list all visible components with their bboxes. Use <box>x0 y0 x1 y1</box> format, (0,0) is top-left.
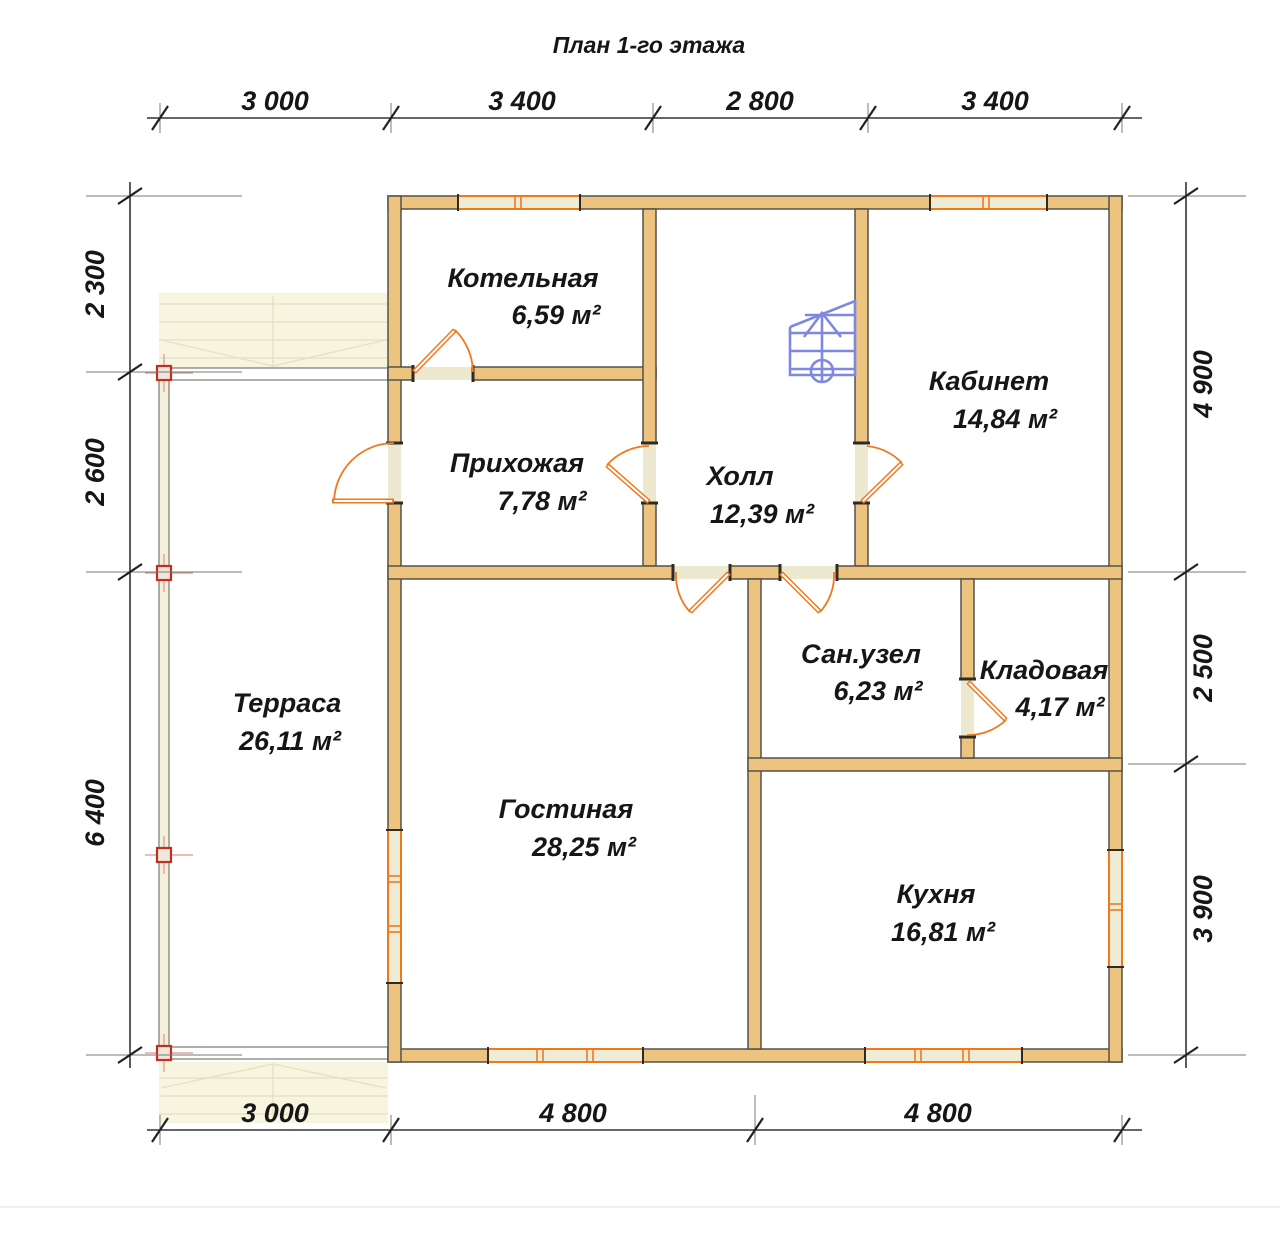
living-room-window-west <box>386 830 403 983</box>
room-area: 26,11 м² <box>238 726 342 756</box>
boiler-door-opening <box>413 365 473 382</box>
dim-top-2: 3 400 <box>488 86 556 116</box>
room-area: 6,23 м² <box>833 676 923 706</box>
dimension-top: 3 000 3 400 2 800 3 400 <box>147 86 1142 133</box>
room-living-room: Гостиная 28,25 м² <box>499 794 637 862</box>
room-area: 14,84 м² <box>953 404 1058 434</box>
living-room-window-south <box>488 1047 643 1064</box>
room-entry-hall: Прихожая 7,78 м² <box>450 448 588 516</box>
room-name: Сан.узел <box>801 639 921 669</box>
room-area: 16,81 м² <box>891 917 996 947</box>
room-area: 4,17 м² <box>1014 692 1105 722</box>
dim-top-1: 3 000 <box>241 86 309 116</box>
dim-top-4: 3 400 <box>961 86 1029 116</box>
room-hall: Холл 12,39 м² <box>704 461 815 529</box>
door-swings <box>332 330 1006 735</box>
room-area: 28,25 м² <box>531 832 637 862</box>
dimension-bottom: 3 000 4 800 4 800 <box>147 1095 1142 1145</box>
dim-right-1: 4 900 <box>1188 350 1218 419</box>
room-name: Холл <box>704 461 773 491</box>
house-walls <box>388 196 1122 1062</box>
boiler-window <box>458 194 580 211</box>
dim-right-2: 2 500 <box>1188 634 1218 703</box>
dimension-right: 4 900 2 500 3 900 <box>1128 182 1246 1068</box>
dim-bottom-2: 4 800 <box>538 1098 607 1128</box>
room-area: 6,59 м² <box>511 300 601 330</box>
kitchen-window-east <box>1107 850 1124 967</box>
entry-door <box>332 443 394 501</box>
room-boiler: Котельная 6,59 м² <box>447 263 601 330</box>
room-bathroom: Сан.узел 6,23 м² <box>801 639 923 706</box>
boiler-door <box>414 330 473 372</box>
room-area: 7,78 м² <box>497 486 587 516</box>
room-terrace: Терраса 26,11 м² <box>233 688 342 756</box>
room-name: Терраса <box>233 688 342 718</box>
dim-left-3: 6 400 <box>80 779 110 847</box>
floor-plan-drawing: План 1-го этажа <box>0 0 1280 1257</box>
room-name: Кабинет <box>929 366 1049 396</box>
dim-bottom-1: 3 000 <box>241 1098 309 1128</box>
dim-left-2: 2 600 <box>80 438 110 507</box>
room-kitchen: Кухня 16,81 м² <box>891 879 996 947</box>
dim-bottom-3: 4 800 <box>903 1098 972 1128</box>
dim-left-1: 2 300 <box>80 250 110 319</box>
room-name: Прихожая <box>450 448 584 478</box>
room-area: 12,39 м² <box>710 499 815 529</box>
kitchen-window-south <box>865 1047 1022 1064</box>
room-name: Котельная <box>447 263 598 293</box>
porch-hatch-top <box>159 293 388 368</box>
stairs-icon <box>790 301 855 382</box>
hallway-door <box>607 446 649 502</box>
entry-door-opening <box>386 443 403 503</box>
room-name: Гостиная <box>499 794 634 824</box>
room-name: Кладовая <box>980 655 1109 685</box>
dim-top-3: 2 800 <box>725 86 794 116</box>
floor-plan-page: План 1-го этажа <box>0 0 1280 1257</box>
plan-title: План 1-го этажа <box>553 32 746 58</box>
room-study: Кабинет 14,84 м² <box>929 366 1058 434</box>
room-name: Кухня <box>897 879 976 909</box>
study-window <box>930 194 1047 211</box>
dim-right-3: 3 900 <box>1188 875 1218 943</box>
